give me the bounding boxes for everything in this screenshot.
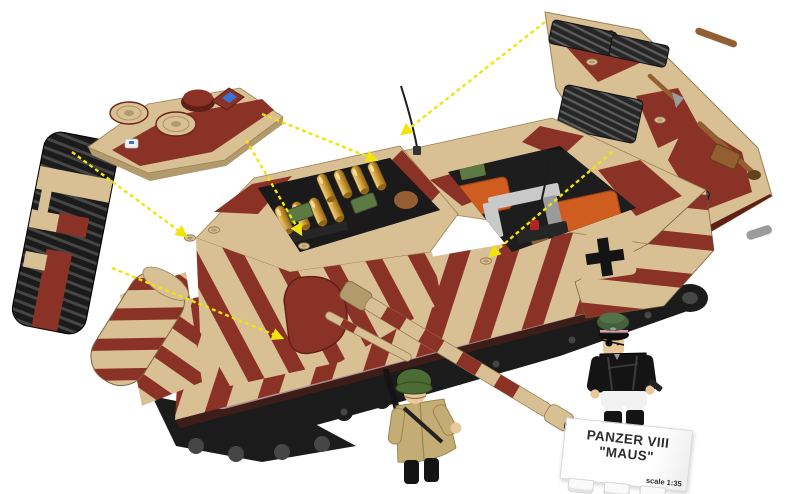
plate-brick-stud: [567, 478, 594, 494]
plate-brick-stud: [603, 481, 630, 494]
officer-peaked-cap: [597, 313, 629, 341]
callout-arrow: [402, 22, 545, 134]
soldier-hand: [451, 423, 462, 434]
soldier-boot: [424, 458, 439, 482]
track-skirt-panel: [10, 130, 120, 338]
roof-small-part: [125, 139, 138, 148]
name-plate: PANZER VIII "MAUS" scale 1:35: [560, 417, 694, 492]
turret-hatch: [110, 102, 148, 124]
cupola-dome: [181, 90, 215, 113]
turret-hatch: [156, 112, 196, 136]
plate-brick-stud: [639, 485, 666, 494]
soldier-boot: [404, 460, 419, 484]
exploded-view-illustration: [0, 0, 800, 494]
turret-roof-panel: [88, 88, 283, 181]
product-photo: PANZER VIII "MAUS" scale 1:35: [0, 0, 800, 494]
